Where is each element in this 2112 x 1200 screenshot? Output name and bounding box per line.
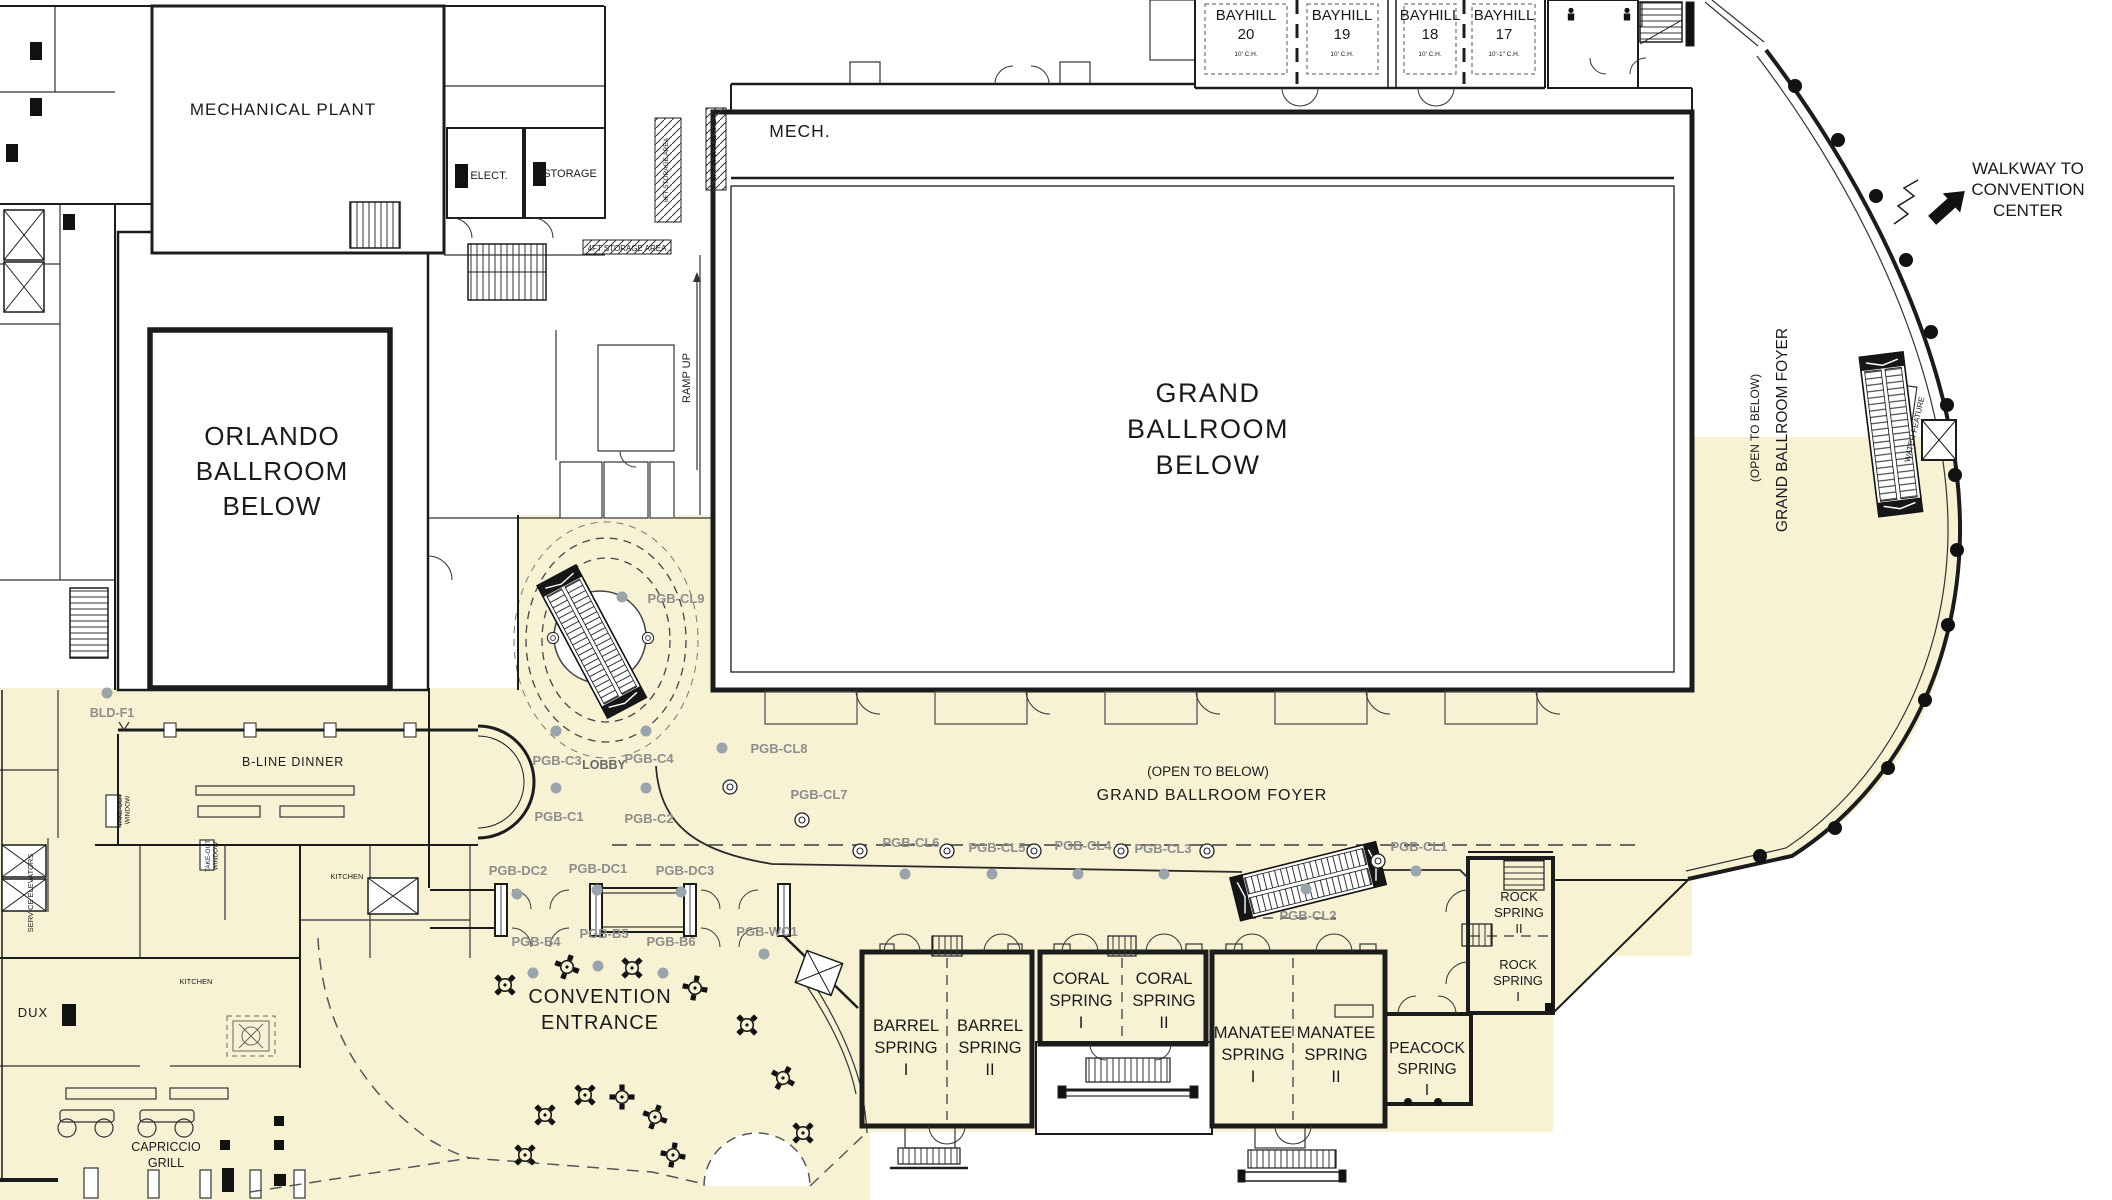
- pgb-c2-label: PGB-C2: [624, 811, 673, 826]
- storage-label: STORAGE: [543, 168, 597, 180]
- pgb-cl5-label: PGB-CL5: [968, 840, 1025, 855]
- mechanical-plant-label: MECHANICAL PLANT: [190, 100, 376, 119]
- pgb-cl8-label: PGB-CL8: [750, 741, 807, 756]
- pgb-cl4-label: PGB-CL4: [1054, 838, 1112, 853]
- pgb-b6-label: PGB-B6: [646, 934, 695, 949]
- pgb-dc1-label: PGB-DC1: [569, 861, 628, 876]
- pgb-cl7-label: PGB-CL7: [790, 787, 847, 802]
- bayhill-20-ch: 10' C.H.: [1234, 51, 1257, 58]
- pgb-cl3-label: PGB-CL3: [1134, 841, 1191, 856]
- rail-post-icon: [547, 632, 558, 643]
- ramp-up-label: RAMP UP: [681, 353, 693, 403]
- storage-4ft-label: 4FT STORAGE AREA: [588, 244, 668, 253]
- pgb-wc1-label: PGB-WC1: [736, 924, 797, 939]
- dux-label: DUX: [18, 1005, 48, 1020]
- grand-ballroom-foyer-vertical: GRAND BALLROOM FOYER: [1774, 328, 1791, 532]
- kitchen-b-label: KITCHEN: [180, 977, 213, 986]
- lobby-label: LOBBY: [582, 758, 626, 772]
- bayhill-18-ch: 10' C.H.: [1418, 51, 1441, 58]
- pgb-c3-label: PGB-C3: [532, 753, 581, 768]
- pgb-dc2-label: PGB-DC2: [489, 863, 548, 878]
- pgb-cl9-label: PGB-CL9: [647, 591, 704, 606]
- open-to-below-horizontal: (OPEN TO BELOW): [1147, 764, 1269, 779]
- pgb-cl2-label: PGB-CL2: [1279, 908, 1336, 923]
- pgb-dc3-label: PGB-DC3: [656, 863, 715, 878]
- service-elevators-label: SERVICE ELEVATORS: [26, 854, 35, 933]
- bayhill-19-ch: 10' C.H.: [1330, 51, 1353, 58]
- kitchen-a-label: KITCHEN: [331, 872, 364, 881]
- grand-ballroom-foyer-horizontal: GRAND BALLROOM FOYER: [1097, 787, 1328, 804]
- restroom-person-icon: [1624, 8, 1630, 21]
- bld-f1-label: BLD-F1: [90, 706, 134, 720]
- takeout-window-b-label: TAKE-OUTWINDOW: [117, 794, 132, 826]
- pgb-cl6-label: PGB-CL6: [882, 835, 939, 850]
- pgb-cl1-label: PGB-CL1: [1390, 839, 1447, 854]
- pgb-c4-label: PGB-C4: [624, 751, 674, 766]
- takeout-window-a-label: TAKE-OUTWINDOW: [205, 840, 220, 872]
- elect-label: ELECT.: [470, 170, 507, 182]
- pgb-c1-label: PGB-C1: [534, 809, 583, 824]
- open-to-below-vertical: (OPEN TO BELOW): [1748, 374, 1762, 482]
- pgb-b4-label: PGB-B4: [511, 934, 561, 949]
- mech-label: MECH.: [769, 121, 830, 141]
- storage-8ft-a-label: 8FT STORAGE AREA: [663, 137, 670, 202]
- pgb-b5-label: PGB-B5: [579, 926, 628, 941]
- restroom-person-icon: [1568, 8, 1574, 21]
- bayhill-17-ch: 10'-1" C.H.: [1488, 51, 1520, 58]
- storage-8ft-b-label: 8FT STORAGE AREA: [711, 115, 718, 180]
- floor-plan-drawing: MECHANICAL PLANTELECT.STORAGEMECH.8FT ST…: [0, 0, 2112, 1200]
- floor-plan-page: MECHANICAL PLANTELECT.STORAGEMECH.8FT ST…: [0, 0, 2112, 1200]
- rail-post-icon: [642, 632, 653, 643]
- bline-dinner-label: B-LINE DINNER: [242, 755, 344, 769]
